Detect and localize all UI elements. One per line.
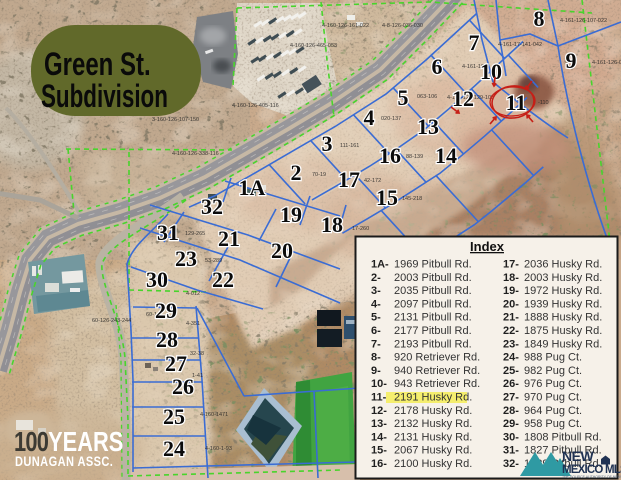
svg-text:32-38: 32-38 [190,351,204,357]
svg-text:11: 11 [506,90,527,115]
svg-text:2003 Husky Rd.: 2003 Husky Rd. [524,272,602,284]
svg-text:16: 16 [379,143,401,168]
svg-text:4-351: 4-351 [186,321,200,327]
svg-text:2177 Pitbull Rd.: 2177 Pitbull Rd. [394,325,472,337]
svg-text:063-106: 063-106 [417,94,437,100]
svg-text:020-137: 020-137 [381,116,401,122]
svg-text:26-: 26- [503,378,519,390]
svg-text:18-: 18- [503,272,519,284]
svg-text:943 Retriever Rd.: 943 Retriever Rd. [394,378,480,390]
svg-text:19: 19 [280,202,302,227]
svg-text:14-: 14- [371,431,387,443]
svg-text:4-160-126-161-022: 4-160-126-161-022 [322,23,369,29]
svg-text:Green St.: Green St. [44,46,151,82]
svg-text:2036 Husky Rd.: 2036 Husky Rd. [524,259,602,271]
svg-text:2067 Husky Rd.: 2067 Husky Rd. [394,445,472,457]
svg-text:8: 8 [534,6,545,31]
svg-text:4-012: 4-012 [186,291,200,297]
svg-text:12: 12 [452,86,474,111]
svg-text:20: 20 [271,238,293,263]
svg-text:111-161: 111-161 [340,143,359,149]
svg-text:958 Pug Ct.: 958 Pug Ct. [524,418,582,430]
svg-text:29-: 29- [503,418,519,430]
svg-text:129-265: 129-265 [185,231,205,237]
svg-text:7: 7 [469,30,480,55]
svg-text:NEW: NEW [562,448,594,464]
svg-text:17-260: 17-260 [352,226,369,232]
svg-text:964 Pug Ct.: 964 Pug Ct. [524,405,582,417]
svg-text:2097 Pitbull Rd.: 2097 Pitbull Rd. [394,298,472,310]
svg-text:976 Pug Ct.: 976 Pug Ct. [524,378,582,390]
svg-text:12-: 12- [371,405,387,417]
svg-text:13-: 13- [371,418,387,430]
svg-text:920 Retriever Rd.: 920 Retriever Rd. [394,352,480,364]
svg-text:4-160-126-405-116: 4-160-126-405-116 [232,103,279,109]
svg-text:10-: 10- [371,378,387,390]
svg-text:16-: 16- [371,458,387,470]
svg-text:4-8-126-036-030: 4-8-126-036-030 [382,23,423,29]
svg-text:28-: 28- [503,405,519,417]
svg-text:3-: 3- [371,285,381,297]
svg-text:18: 18 [321,212,343,237]
svg-text:25: 25 [163,404,185,429]
svg-text:5-: 5- [371,312,381,324]
svg-text:THE SOURCE AUTHORITY OF NEW ME: THE SOURCE AUTHORITY OF NEW MEXICO HOMES [562,475,621,479]
svg-text:42-172: 42-172 [364,178,381,184]
svg-text:4-160-1471: 4-160-1471 [200,412,228,418]
svg-text:1875 Husky Rd.: 1875 Husky Rd. [524,325,602,337]
svg-text:4-160-126-465-053: 4-160-126-465-053 [290,43,337,49]
svg-text:2131 Pitbull Rd.: 2131 Pitbull Rd. [394,312,472,324]
svg-text:4-160-126-338-116: 4-160-126-338-116 [172,151,219,157]
svg-text:2100 Husky Rd.: 2100 Husky Rd. [394,458,472,470]
svg-text:4-161-17-141-042: 4-161-17-141-042 [498,42,542,48]
svg-text:21: 21 [218,226,240,251]
svg-text:19-: 19- [503,285,519,297]
svg-text:20-: 20- [503,298,519,310]
svg-text:32: 32 [201,194,223,219]
svg-text:8-: 8- [371,352,381,364]
svg-text:2191 Husky Rd.: 2191 Husky Rd. [394,392,472,404]
svg-text:-110: -110 [538,100,549,106]
svg-text:3: 3 [322,131,333,156]
svg-text:14: 14 [435,143,457,168]
svg-text:1888 Husky Rd.: 1888 Husky Rd. [524,312,602,324]
svg-text:4-161-126-107-022: 4-161-126-107-022 [560,18,607,24]
svg-text:2003 Pitbull Rd.: 2003 Pitbull Rd. [394,272,472,284]
svg-text:1969 Pitbull Rd.: 1969 Pitbull Rd. [394,259,472,271]
svg-text:9-: 9- [371,365,381,377]
svg-text:1A-: 1A- [371,259,389,271]
svg-text:88-139: 88-139 [406,154,423,160]
svg-text:31: 31 [157,220,179,245]
svg-text:2132 Husky Rd.: 2132 Husky Rd. [394,418,472,430]
svg-text:982 Pug Ct.: 982 Pug Ct. [524,365,582,377]
svg-text:2: 2 [291,160,302,185]
svg-text:9: 9 [566,48,577,73]
svg-text:23-: 23- [503,338,519,350]
svg-text:15: 15 [376,185,398,210]
svg-text:988 Pug Ct.: 988 Pug Ct. [524,352,582,364]
svg-text:21-: 21- [503,312,519,324]
svg-text:940 Retriever Rd.: 940 Retriever Rd. [394,365,480,377]
svg-text:17-: 17- [503,259,519,271]
svg-text:24-: 24- [503,352,519,364]
svg-text:30: 30 [146,267,168,292]
svg-text:60-126-243-244: 60-126-243-244 [92,318,131,324]
svg-text:Subdivision: Subdivision [41,78,168,114]
svg-text:25-: 25- [503,365,519,377]
svg-text:6-: 6- [371,325,381,337]
svg-text:27: 27 [165,351,187,376]
svg-text:1972 Husky Rd.: 1972 Husky Rd. [524,285,602,297]
svg-text:11-: 11- [371,392,387,404]
svg-text:4: 4 [364,105,375,130]
svg-text:26: 26 [172,374,194,399]
svg-text:2-: 2- [371,272,381,284]
svg-text:1849 Husky Rd.: 1849 Husky Rd. [524,338,602,350]
svg-text:13: 13 [417,114,439,139]
svg-text:22-: 22- [503,325,519,337]
svg-text:Index: Index [470,239,505,254]
svg-text:7-: 7- [371,338,381,350]
svg-text:27-: 27- [503,392,519,404]
svg-text:1808 Pitbull Rd.: 1808 Pitbull Rd. [524,431,602,443]
svg-text:6: 6 [432,54,443,79]
svg-text:DUNAGAN ASSC.: DUNAGAN ASSC. [15,454,113,469]
svg-text:32-: 32- [503,458,519,470]
svg-text:31-: 31- [503,445,519,457]
svg-text:5: 5 [398,85,409,110]
svg-text:2178 Husky Rd.: 2178 Husky Rd. [394,405,472,417]
svg-text:4-160-1-93: 4-160-1-93 [205,446,232,452]
svg-text:1A: 1A [239,175,266,200]
svg-text:70-19: 70-19 [312,172,326,178]
svg-text:4-161-126-07: 4-161-126-07 [592,60,621,66]
svg-text:23: 23 [175,246,197,271]
svg-text:29: 29 [155,298,177,323]
svg-text:30-: 30- [503,431,519,443]
svg-text:17: 17 [338,167,360,192]
svg-text:3-160-126-107-150: 3-160-126-107-150 [152,117,199,123]
svg-text:2193 Pitbull Rd.: 2193 Pitbull Rd. [394,338,472,350]
svg-text:4-: 4- [371,298,381,310]
svg-text:2035 Pitbull Rd.: 2035 Pitbull Rd. [394,285,472,297]
svg-text:10: 10 [480,59,502,84]
svg-text:145-218: 145-218 [402,196,422,202]
svg-text:970 Pug Ct.: 970 Pug Ct. [524,392,582,404]
svg-text:24: 24 [163,436,185,461]
svg-text:53-289: 53-289 [205,258,222,264]
svg-text:2131 Husky Rd.: 2131 Husky Rd. [394,431,472,443]
svg-text:22: 22 [212,267,234,292]
svg-text:28: 28 [156,327,178,352]
svg-text:15-: 15- [371,445,387,457]
svg-text:1939 Husky Rd.: 1939 Husky Rd. [524,298,602,310]
